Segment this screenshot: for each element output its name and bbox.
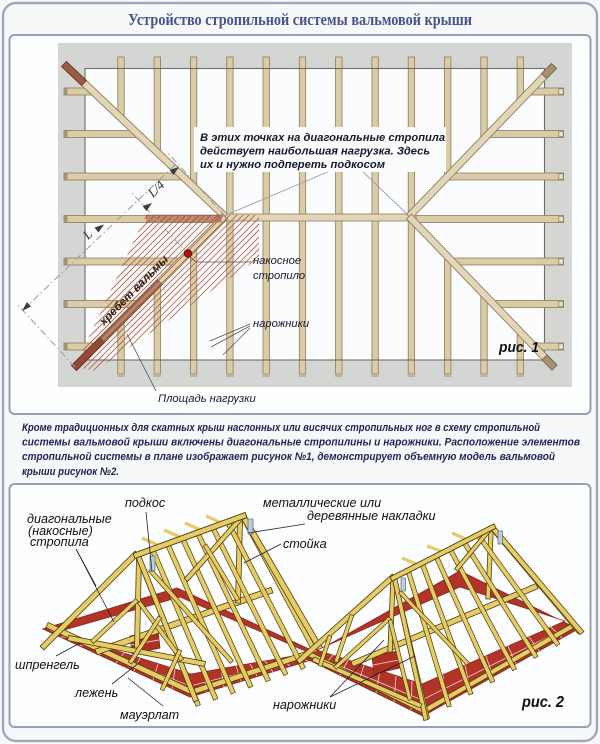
- svg-text:системы вальмовой крыши включе: системы вальмовой крыши включены диагона…: [22, 437, 580, 449]
- svg-text:рис. 1: рис. 1: [498, 340, 539, 356]
- svg-text:рис. 2: рис. 2: [521, 694, 564, 711]
- svg-text:накосное: накосное: [253, 255, 301, 267]
- svg-text:стойка: стойка: [283, 537, 327, 551]
- svg-text:Кроме традиционных для скатных: Кроме традиционных для скатных крыш насл…: [22, 422, 540, 434]
- svg-text:нарожники: нарожники: [253, 318, 309, 330]
- svg-text:лежень: лежень: [74, 686, 118, 700]
- svg-text:подкос: подкос: [125, 496, 166, 510]
- svg-text:стропила: стропила: [30, 535, 89, 549]
- svg-text:Площадь нагрузки: Площадь нагрузки: [158, 393, 256, 405]
- svg-text:их и нужно подпереть подкосом: их и нужно подпереть подкосом: [200, 159, 386, 171]
- svg-text:В этих точках на диагональные: В этих точках на диагональные стропила: [200, 132, 445, 144]
- svg-text:металлические или: металлические или: [263, 496, 381, 510]
- svg-text:Устройство стропильной системы: Устройство стропильной системы вальмовой…: [128, 10, 472, 29]
- svg-text:мауэрлат: мауэрлат: [120, 708, 179, 722]
- svg-text:действует наибольшая нагрузка.: действует наибольшая нагрузка. Здесь: [200, 146, 430, 158]
- svg-text:стропило: стропило: [253, 270, 305, 282]
- svg-text:шпренгель: шпренгель: [15, 658, 80, 672]
- svg-text:стропильной системы в плане из: стропильной системы в плане изображает р…: [22, 451, 555, 463]
- svg-text:крыши рисунок №2.: крыши рисунок №2.: [22, 466, 119, 478]
- svg-text:деревянные накладки: деревянные накладки: [307, 509, 436, 523]
- svg-text:нарожники: нарожники: [273, 698, 336, 712]
